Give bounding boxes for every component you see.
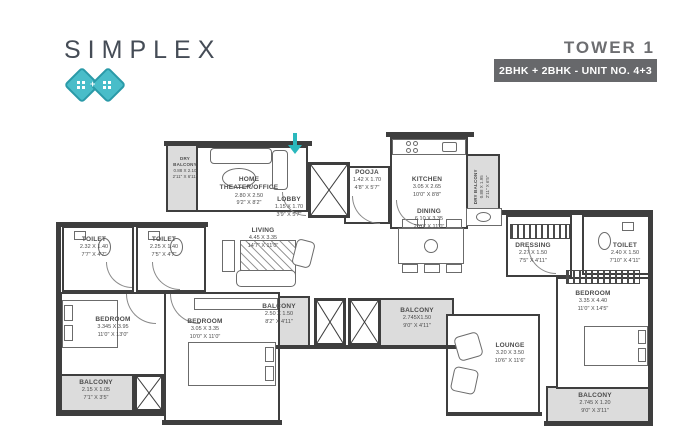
sofa bbox=[236, 270, 296, 287]
pillow bbox=[638, 348, 646, 362]
bed bbox=[188, 342, 276, 386]
wardrobe bbox=[566, 270, 640, 284]
room-label-balcony-mid-1: BALCONY 2.50 X 1.50 8'2" X 4'11" bbox=[250, 303, 308, 326]
lift-shaft-bottom-1 bbox=[314, 298, 346, 346]
logo-dot bbox=[103, 86, 106, 89]
floor-plan-page: SIMPLEX + TOWER 1 2BHK + 2BHK - UNIT NO.… bbox=[0, 0, 681, 432]
chair bbox=[402, 264, 418, 273]
brand-logo-text: SIMPLEX bbox=[64, 36, 221, 65]
pillow bbox=[64, 305, 73, 321]
room-label-bedroom-mid: BEDROOM 3.05 X 3.35 10'0" X 11'0" bbox=[172, 318, 238, 341]
room-label-lobby: LOBBY 1.15 X 1.70 3'9" X 5'7" bbox=[266, 196, 312, 219]
room-label-kitchen: KITCHEN 3.05 X 2.65 10'0" X 8'8" bbox=[398, 176, 456, 199]
room-label-bedroom-right: BEDROOM 3.35 X 4.40 11'0" X 14'5" bbox=[560, 290, 626, 313]
unit-info-badge: 2BHK + 2BHK - UNIT NO. 4+3 bbox=[494, 59, 657, 82]
duct-shaft-left bbox=[134, 374, 164, 412]
hob-burner bbox=[413, 148, 418, 153]
pillow bbox=[265, 347, 274, 362]
kitchen-sink bbox=[442, 142, 457, 152]
sink bbox=[622, 222, 634, 231]
lounge-chair bbox=[450, 366, 480, 396]
wall bbox=[386, 132, 474, 137]
logo-dot bbox=[108, 86, 111, 89]
logo-dot bbox=[77, 86, 80, 89]
wall bbox=[544, 421, 653, 426]
chair bbox=[446, 264, 462, 273]
wardrobe bbox=[510, 224, 570, 239]
room-label-dry-balcony-left: DRY BALCONY 0.88 X 2.10 2'11" X 6'11" bbox=[168, 156, 202, 179]
wall bbox=[502, 210, 652, 215]
wall bbox=[162, 420, 282, 425]
logo-dot bbox=[77, 81, 80, 84]
entrance-arrow-head-icon bbox=[288, 145, 302, 154]
pillow bbox=[64, 325, 73, 341]
room-label-balcony-left: BALCONY 2.15 X 1.05 7'1" X 3'5" bbox=[66, 379, 126, 402]
room-label-living: LIVING 4.45 X 3.35 14'7" X 11'0" bbox=[232, 227, 294, 250]
logo-dot bbox=[82, 81, 85, 84]
lift-shaft-bottom-2 bbox=[348, 298, 381, 346]
room-label-toilet-2: TOILET 2.25 X 1.40 7'5" X 4'7" bbox=[140, 236, 188, 259]
logo-dot bbox=[108, 81, 111, 84]
pillow bbox=[265, 366, 274, 381]
hob-burner bbox=[406, 148, 411, 153]
hob-burner bbox=[413, 141, 418, 146]
entrance-arrow-icon bbox=[293, 133, 297, 145]
room-label-balcony-bottom-right: BALCONY 2.745 X 1.20 9'0" X 3'11" bbox=[562, 392, 628, 415]
room-label-dressing: DRESSING 2.27 X 1.50 7'5" X 4'11" bbox=[504, 242, 562, 265]
room-label-toilet-right: TOILET 2.40 X 1.50 7'10" X 4'11" bbox=[598, 242, 652, 265]
logo-dot bbox=[103, 81, 106, 84]
table-decor bbox=[424, 239, 438, 253]
room-label-lounge: LOUNGE 3.20 X 3.50 10'6" X 11'6" bbox=[482, 342, 538, 365]
tower-title: TOWER 1 bbox=[564, 38, 655, 58]
room-label-bedroom-left: BEDROOM 3.345 X 3.95 11'0" X 13'0" bbox=[82, 316, 144, 339]
wall bbox=[56, 222, 208, 227]
chair bbox=[424, 264, 440, 273]
room-label-pooja: POOJA 1.42 X 1.70 4'8" X 5'7" bbox=[342, 169, 392, 192]
logo-dot bbox=[82, 86, 85, 89]
logo-plus-icon: + bbox=[90, 79, 95, 89]
room-label-toilet-1: TOILET 2.32 X 1.40 7'7" X 4'7" bbox=[70, 236, 118, 259]
pillow bbox=[638, 330, 646, 344]
wall bbox=[446, 412, 542, 416]
room-label-dry-balcony-right: DRY BALCONY 0.88 X 1.95 2'11" X 6'5" bbox=[473, 157, 491, 217]
wall bbox=[56, 222, 61, 416]
sofa bbox=[210, 148, 272, 164]
hob-burner bbox=[406, 141, 411, 146]
room-label-dining: DINING 6.10 X 3.35 20'0" X 11'0" bbox=[398, 208, 460, 231]
room-label-balcony-mid-2: BALCONY 2.745X1.50 9'0" X 4'11" bbox=[386, 307, 448, 330]
room-lounge bbox=[446, 314, 540, 416]
